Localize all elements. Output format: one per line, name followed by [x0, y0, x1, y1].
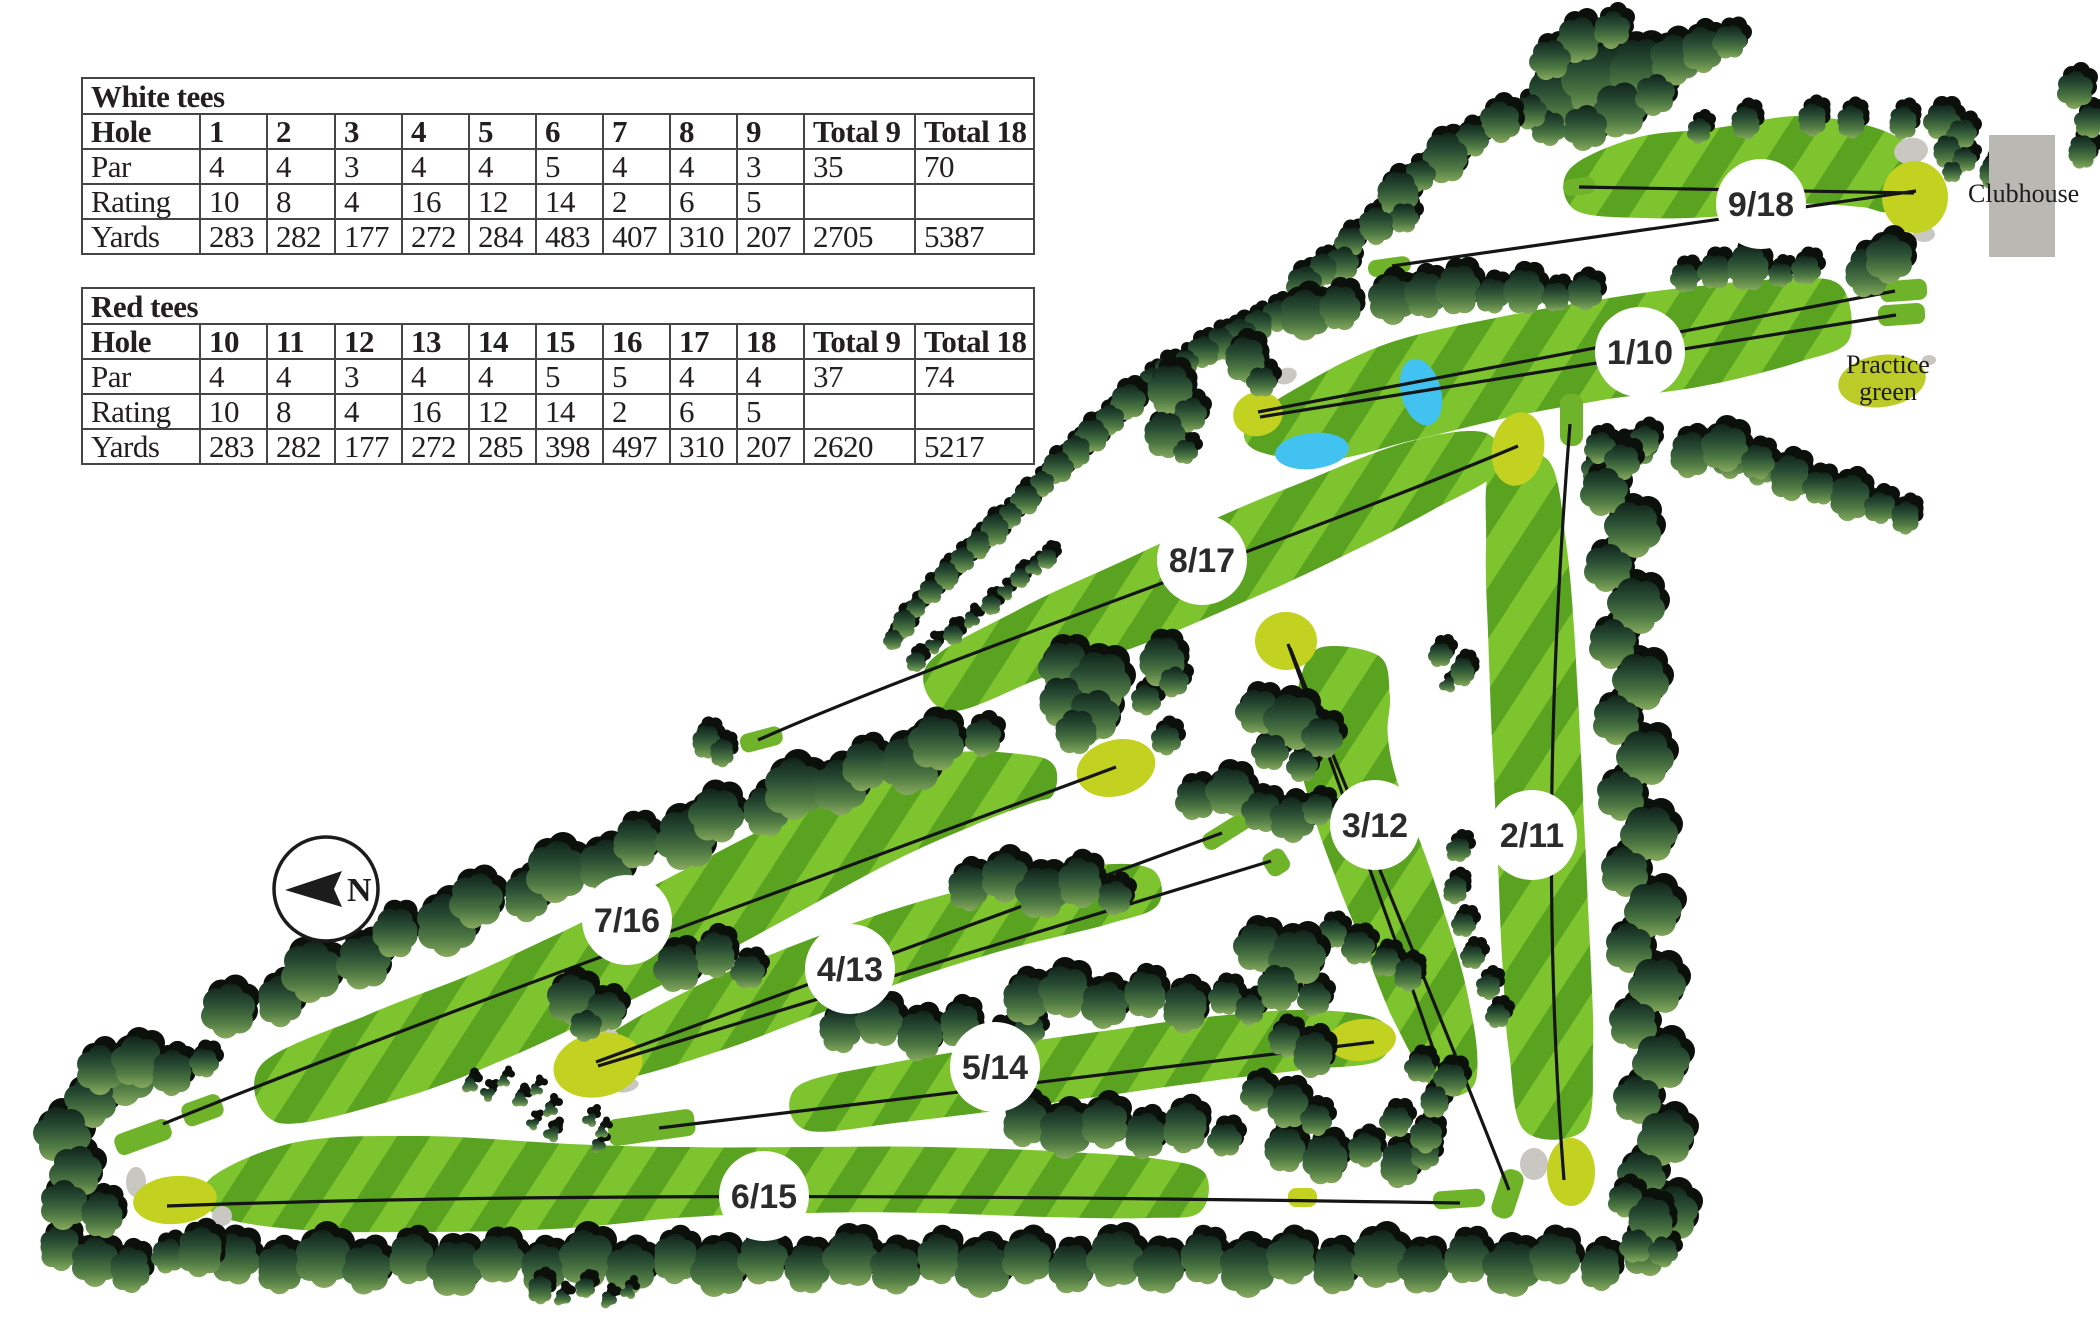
svg-text:7/16: 7/16 — [594, 902, 660, 940]
svg-text:6/15: 6/15 — [731, 1178, 797, 1216]
svg-text:2/11: 2/11 — [1500, 817, 1564, 855]
svg-text:1/10: 1/10 — [1607, 334, 1673, 372]
svg-text:green: green — [1859, 377, 1917, 406]
svg-text:8/17: 8/17 — [1169, 542, 1235, 580]
svg-text:3/12: 3/12 — [1342, 807, 1408, 845]
svg-text:Clubhouse: Clubhouse — [1968, 179, 2079, 208]
svg-text:4/13: 4/13 — [817, 951, 883, 989]
svg-text:N: N — [347, 872, 372, 909]
svg-text:5/14: 5/14 — [962, 1049, 1028, 1087]
svg-text:Practice: Practice — [1846, 350, 1930, 379]
svg-text:9/18: 9/18 — [1728, 186, 1794, 224]
